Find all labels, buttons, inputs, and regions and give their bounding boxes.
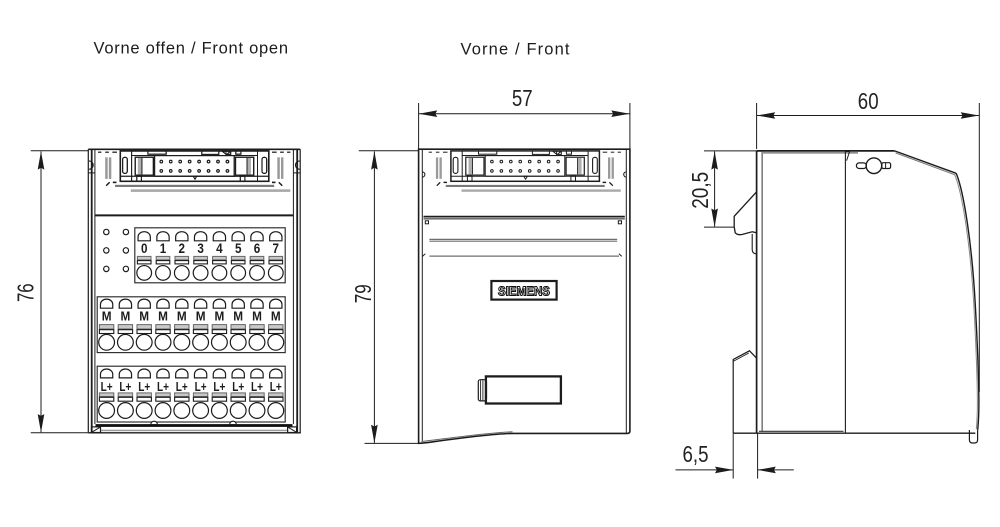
svg-text:L+: L+ (232, 380, 244, 394)
svg-text:7: 7 (273, 241, 280, 256)
svg-text:Vorne offen / Front open: Vorne offen / Front open (94, 40, 289, 58)
svg-text:M: M (252, 309, 262, 324)
svg-text:76: 76 (13, 283, 39, 302)
svg-text:L+: L+ (195, 380, 207, 394)
svg-text:79: 79 (350, 284, 376, 303)
svg-text:M: M (271, 309, 281, 324)
svg-text:L+: L+ (119, 380, 131, 394)
svg-text:3: 3 (197, 241, 204, 256)
svg-text:M: M (139, 309, 149, 324)
svg-text:0: 0 (141, 241, 148, 256)
svg-text:M: M (233, 309, 243, 324)
svg-text:M: M (102, 309, 112, 324)
svg-text:1: 1 (160, 241, 167, 256)
svg-text:M: M (158, 309, 168, 324)
svg-text:60: 60 (858, 88, 879, 114)
svg-text:4: 4 (216, 241, 223, 256)
svg-text:L+: L+ (213, 380, 225, 394)
svg-text:L+: L+ (270, 380, 282, 394)
svg-text:SIEMENS: SIEMENS (498, 284, 550, 298)
svg-text:2: 2 (179, 241, 186, 256)
svg-text:M: M (215, 309, 225, 324)
svg-text:20,5: 20,5 (687, 172, 713, 209)
svg-text:57: 57 (512, 85, 533, 111)
svg-text:L+: L+ (176, 380, 188, 394)
svg-text:6,5: 6,5 (683, 441, 709, 467)
svg-text:L+: L+ (157, 380, 169, 394)
svg-text:L+: L+ (101, 380, 113, 394)
svg-text:5: 5 (235, 241, 242, 256)
svg-text:M: M (196, 309, 206, 324)
svg-text:M: M (121, 309, 131, 324)
svg-text:M: M (177, 309, 187, 324)
svg-text:6: 6 (254, 241, 261, 256)
svg-text:L+: L+ (138, 380, 150, 394)
svg-text:L+: L+ (251, 380, 263, 394)
